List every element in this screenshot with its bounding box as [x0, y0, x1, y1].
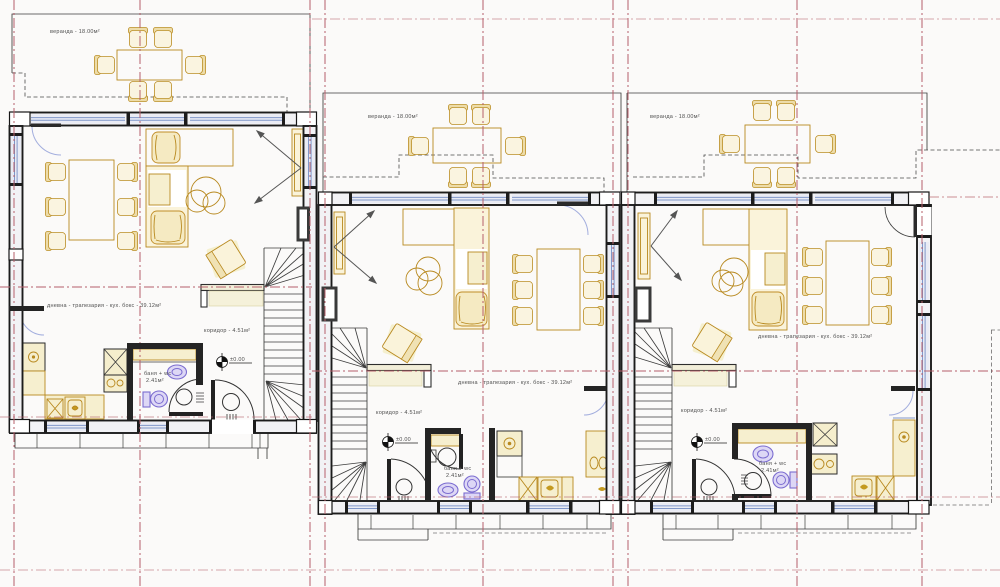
svg-text:±0.00: ±0.00: [396, 437, 411, 443]
svg-text:веранда - 18.00м²: веранда - 18.00м²: [368, 114, 418, 120]
svg-text:коридор - 4.51м²: коридор - 4.51м²: [204, 328, 250, 334]
svg-text:веранда - 18.00м²: веранда - 18.00м²: [50, 29, 100, 35]
svg-text:веранда - 18.00м²: веранда - 18.00м²: [650, 114, 700, 120]
svg-text:дневна - трапезария - кух. бок: дневна - трапезария - кух. бокс - 39.12м…: [47, 303, 161, 309]
svg-text:баня + wc: баня + wc: [444, 466, 471, 472]
svg-text:2.41м²: 2.41м²: [146, 378, 164, 384]
svg-text:коридор - 4.51м²: коридор - 4.51м²: [681, 408, 727, 414]
svg-text:±0.00: ±0.00: [705, 437, 720, 443]
svg-text:дневна - трапезария - кух. бок: дневна - трапезария - кух. бокс - 39.12м…: [758, 334, 872, 340]
svg-text:дневна - трапезария - кух. бок: дневна - трапезария - кух. бокс - 39.12м…: [458, 380, 572, 386]
svg-text:баня + wc: баня + wc: [759, 461, 786, 467]
svg-text:±0.00: ±0.00: [230, 357, 245, 363]
svg-text:баня + wc: баня + wc: [144, 371, 171, 377]
svg-text:2.41м²: 2.41м²: [446, 473, 464, 479]
svg-text:2.41м²: 2.41м²: [761, 468, 779, 474]
svg-text:коридор - 4.51м²: коридор - 4.51м²: [376, 410, 422, 416]
